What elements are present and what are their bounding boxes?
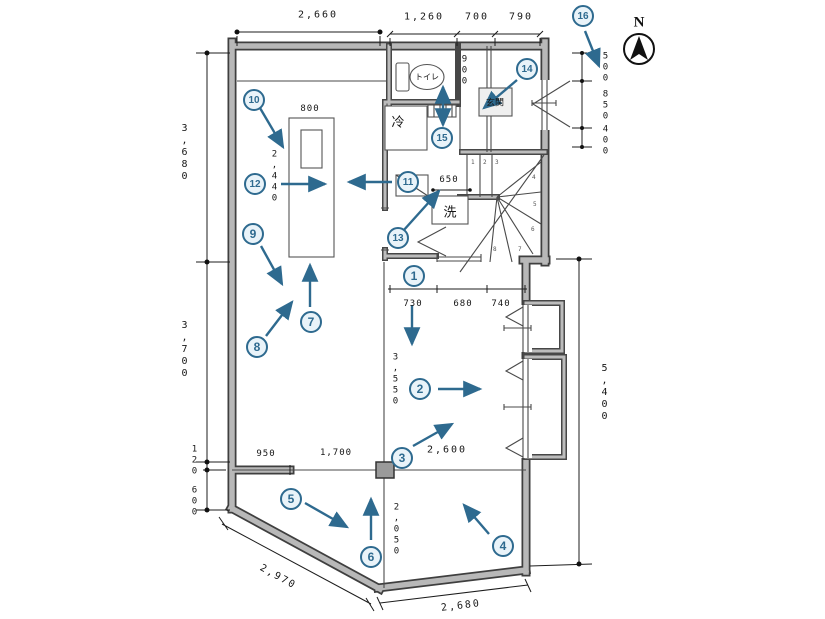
dim-left-mid: 3,700: [179, 320, 189, 380]
stair-step: 6: [531, 226, 535, 233]
stair-step: 5: [533, 201, 537, 208]
marker-8: 8: [246, 336, 268, 358]
marker-9: 9: [242, 223, 264, 245]
dim-left-lower: 600: [190, 486, 199, 519]
dim-counter-length: 2,440: [270, 150, 279, 205]
label-fridge: 冷: [391, 112, 404, 131]
dim-top-c: 790: [509, 12, 533, 23]
dim-left-upper: 3,680: [179, 123, 189, 183]
column: [376, 462, 394, 478]
floor-plan-drawing: 1 2 3 4 5 6 7 8: [0, 0, 825, 619]
stair-step: 1: [471, 159, 475, 166]
stair-step: 7: [518, 246, 522, 253]
stair-step: 4: [532, 174, 536, 181]
marker-11: 11: [397, 171, 419, 193]
compass-north-label: N: [634, 15, 645, 32]
dim-top-main: 2,660: [298, 10, 338, 21]
dim-hall-c: 740: [491, 299, 510, 309]
dim-room2-height: 3,550: [391, 353, 400, 408]
dim-hall-a: 730: [403, 299, 422, 309]
staircase: 1 2 3 4 5 6 7 8: [460, 155, 544, 272]
marker-3: 3: [391, 447, 413, 469]
marker-13: 13: [387, 227, 409, 249]
marker-10: 10: [243, 89, 265, 111]
label-toilet: トイレ: [415, 72, 439, 83]
marker-1: 1: [403, 265, 425, 287]
dim-toilet-depth: 900: [460, 55, 469, 88]
marker-4: 4: [492, 535, 514, 557]
marker-12: 12: [244, 173, 266, 195]
stair-step: 8: [493, 246, 497, 253]
dim-left-small: 120: [190, 445, 199, 478]
dim-right-total: 5,400: [599, 363, 609, 423]
floor-plan: 1 2 3 4 5 6 7 8: [0, 0, 825, 619]
marker-6: 6: [360, 546, 382, 568]
marker-7: 7: [300, 311, 322, 333]
dim-bottom-a: 950: [256, 449, 275, 459]
marker-16: 16: [572, 5, 594, 27]
label-entrance: 玄関: [486, 96, 504, 109]
marker-5: 5: [280, 488, 302, 510]
dim-top-a: 1,260: [404, 12, 444, 23]
marker-2: 2: [409, 378, 431, 400]
dim-hall-b: 680: [453, 299, 472, 309]
window-symbols: [504, 80, 570, 458]
label-washer: 洗: [443, 202, 456, 221]
dim-entry-a: 500: [601, 52, 610, 85]
dim-bottom-b: 1,700: [320, 448, 352, 458]
partitions: [232, 46, 526, 588]
dim-entry-b: 850: [601, 90, 610, 123]
north-arrow-icon: [624, 34, 654, 64]
dim-counter-width: 800: [300, 104, 319, 114]
dim-washer-width: 650: [439, 175, 458, 185]
marker-15: 15: [431, 127, 453, 149]
marker-14: 14: [516, 58, 538, 80]
dim-bottom-height: 2,050: [392, 503, 401, 558]
stair-step: 3: [495, 159, 499, 166]
kitchen-counter: [289, 118, 334, 257]
dim-top-b: 700: [465, 12, 489, 23]
dim-entry-c: 400: [601, 125, 610, 158]
stair-step: 2: [483, 159, 487, 166]
dim-room2-diag: 2,600: [427, 445, 467, 456]
